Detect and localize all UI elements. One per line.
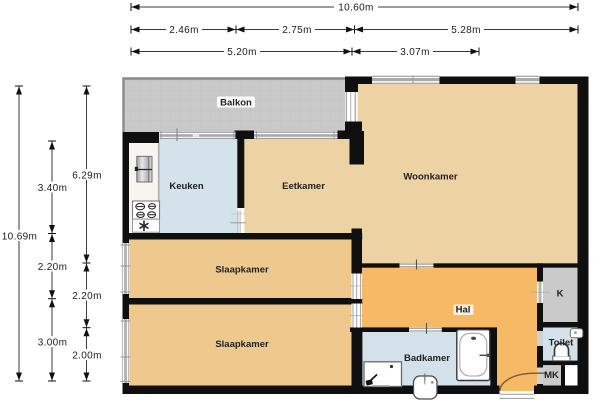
svg-text:10.60m: 10.60m <box>338 3 373 14</box>
svg-text:3.00m: 3.00m <box>38 338 68 349</box>
svg-text:Slaapkamer: Slaapkamer <box>215 339 269 350</box>
svg-text:Eetkamer: Eetkamer <box>282 181 325 192</box>
svg-text:6.29m: 6.29m <box>72 171 102 182</box>
svg-text:Hal: Hal <box>456 305 471 316</box>
svg-text:5.20m: 5.20m <box>227 47 257 58</box>
svg-text:2.00m: 2.00m <box>72 351 102 362</box>
svg-text:Balkon: Balkon <box>220 98 252 109</box>
svg-text:2.20m: 2.20m <box>72 291 102 302</box>
svg-text:10.69m: 10.69m <box>2 232 37 243</box>
svg-text:K: K <box>557 289 564 300</box>
svg-text:2.75m: 2.75m <box>282 25 312 36</box>
svg-text:MK: MK <box>544 370 559 381</box>
svg-text:2.20m: 2.20m <box>38 262 68 273</box>
svg-text:Keuken: Keuken <box>169 181 204 192</box>
svg-text:5.28m: 5.28m <box>451 25 481 36</box>
svg-text:2.46m: 2.46m <box>169 25 199 36</box>
svg-text:Woonkamer: Woonkamer <box>403 172 458 183</box>
svg-text:3.40m: 3.40m <box>38 183 68 194</box>
svg-text:Slaapkamer: Slaapkamer <box>215 265 269 276</box>
svg-text:3.07m: 3.07m <box>400 47 430 58</box>
svg-text:Badkamer: Badkamer <box>404 353 450 364</box>
svg-text:Toilet: Toilet <box>549 337 574 348</box>
